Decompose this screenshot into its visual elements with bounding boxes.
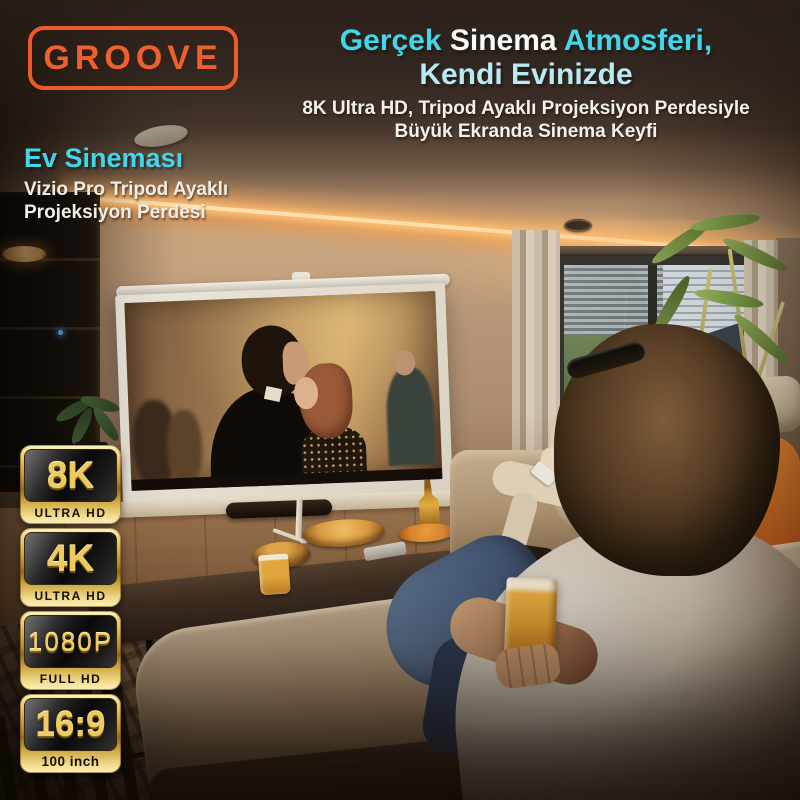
headline-line1: Gerçek Sinema Atmosferi, bbox=[252, 24, 800, 58]
promo-image: GROOVE Gerçek Sinema Atmosferi, Kendi Ev… bbox=[0, 0, 800, 800]
badge-value: 1080P bbox=[28, 629, 113, 655]
badge-panel: 1080P bbox=[24, 615, 117, 668]
badge-1080p-full-hd: 1080P FULL HD bbox=[20, 611, 121, 690]
badge-16-9-100-inch: 16:9 100 inch bbox=[20, 694, 121, 773]
product-name-line1: Vizio Pro Tripod Ayaklı bbox=[24, 178, 228, 201]
headline-line2: Kendi Evinizde bbox=[252, 58, 800, 92]
badge-4k-ultra-hd: 4K ULTRA HD bbox=[20, 528, 121, 607]
spec-badges: 8K ULTRA HD 4K ULTRA HD 1080P FULL HD 16… bbox=[20, 445, 121, 777]
subheadline-line1: 8K Ultra HD, Tripod Ayaklı Projeksiyon P… bbox=[246, 97, 800, 120]
product-name-line2: Projeksiyon Perdesi bbox=[24, 201, 228, 224]
product-info: Ev Sineması Vizio Pro Tripod Ayaklı Proj… bbox=[24, 143, 228, 224]
brand-logo: GROOVE bbox=[28, 26, 238, 90]
text-overlay: GROOVE Gerçek Sinema Atmosferi, Kendi Ev… bbox=[0, 0, 800, 800]
badge-value: 4K bbox=[47, 540, 94, 577]
headline-word-white: Sinema bbox=[450, 24, 557, 57]
badge-value: 16:9 bbox=[35, 707, 105, 742]
badge-panel: 4K bbox=[24, 532, 117, 585]
badge-8k-ultra-hd: 8K ULTRA HD bbox=[20, 445, 121, 524]
subheadline: 8K Ultra HD, Tripod Ayaklı Projeksiyon P… bbox=[246, 97, 800, 143]
headline: Gerçek Sinema Atmosferi, Kendi Evinizde bbox=[252, 24, 800, 92]
product-category: Ev Sineması bbox=[24, 143, 228, 174]
headline-word-accent: Atmosferi, bbox=[564, 24, 712, 57]
headline-word-accent: Gerçek bbox=[340, 24, 442, 57]
badge-panel: 8K bbox=[24, 449, 117, 502]
subheadline-line2: Büyük Ekranda Sinema Keyfi bbox=[246, 120, 800, 143]
badge-value: 8K bbox=[47, 457, 94, 494]
badge-label: FULL HD bbox=[24, 668, 117, 689]
brand-logo-text: GROOVE bbox=[43, 39, 222, 78]
badge-label: ULTRA HD bbox=[24, 502, 117, 523]
badge-panel: 16:9 bbox=[24, 698, 117, 751]
badge-label: 100 inch bbox=[24, 751, 117, 772]
badge-label: ULTRA HD bbox=[24, 585, 117, 606]
